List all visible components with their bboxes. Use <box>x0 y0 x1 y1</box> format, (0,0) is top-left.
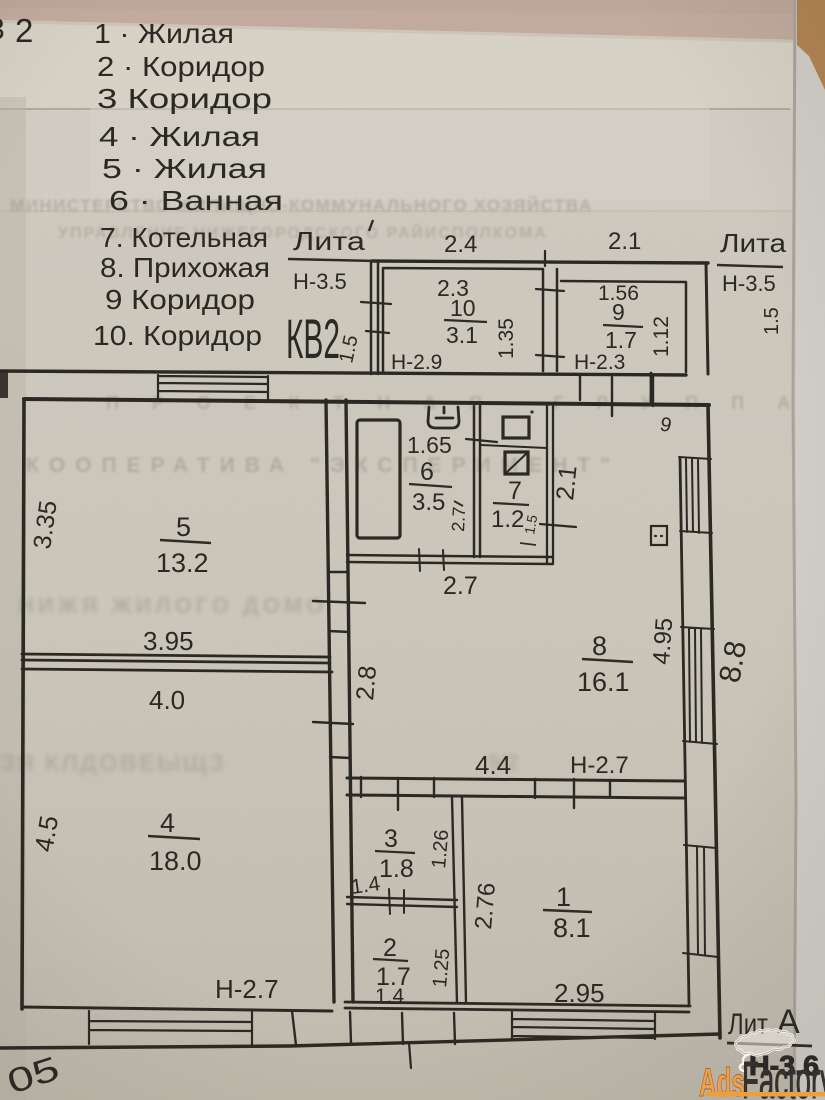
svg-text:2.7: 2.7 <box>443 572 478 600</box>
svg-text:18.0: 18.0 <box>149 846 202 876</box>
svg-text:2: 2 <box>383 934 397 962</box>
svg-text:10: 10 <box>450 295 476 321</box>
svg-text:Н-2.7: Н-2.7 <box>215 974 279 1004</box>
svg-text:2: 2 <box>15 12 33 49</box>
svg-text:4.5: 4.5 <box>28 813 64 854</box>
svg-text:3: 3 <box>0 13 5 46</box>
svg-text:1.5: 1.5 <box>521 513 540 535</box>
svg-text:КВ2: КВ2 <box>286 307 340 370</box>
svg-text:Лита: Лита <box>720 228 787 258</box>
svg-text:Н-2.7: Н-2.7 <box>570 752 629 779</box>
svg-text:7: 7 <box>508 477 522 505</box>
svg-text:1.12: 1.12 <box>650 316 673 357</box>
svg-text:Н-2.9: Н-2.9 <box>391 351 442 374</box>
svg-text:5 · Жилая: 5 · Жилая <box>102 153 267 184</box>
svg-text:10. Коридор: 10. Коридор <box>93 320 262 351</box>
svg-text:Лита: Лита <box>293 226 366 256</box>
svg-text:6 · Ванная: 6 · Ванная <box>109 185 283 216</box>
svg-text:6: 6 <box>420 458 434 486</box>
svg-text:4.4: 4.4 <box>475 750 511 780</box>
svg-text:1.4: 1.4 <box>375 985 405 1008</box>
svg-text:НИЖЯ ЖИЛОГО ДОМО: НИЖЯ ЖИЛОГО ДОМО <box>18 593 327 618</box>
svg-text:8. Прихожая: 8. Прихожая <box>100 252 270 283</box>
svg-text:1 · Жилая: 1 · Жилая <box>94 18 234 49</box>
svg-text:4 · Жилая: 4 · Жилая <box>99 121 260 152</box>
svg-text:КООПЕРАТИВА "ЭКСПЕРИМЕНТ": КООПЕРАТИВА "ЭКСПЕРИМЕНТ" <box>26 454 620 477</box>
svg-text:2.1: 2.1 <box>551 464 582 502</box>
svg-text:1.5: 1.5 <box>761 307 783 335</box>
svg-text:1.4: 1.4 <box>349 872 381 899</box>
svg-text:1.35: 1.35 <box>495 318 518 359</box>
svg-text:4: 4 <box>160 808 175 838</box>
svg-text:Н-3.5: Н-3.5 <box>722 271 776 296</box>
svg-text:9 Коридор: 9 Коридор <box>105 284 255 315</box>
svg-text:1.65: 1.65 <box>407 432 452 458</box>
svg-text:2.4: 2.4 <box>444 231 477 258</box>
svg-text:4.95: 4.95 <box>648 617 678 665</box>
svg-text:16.1: 16.1 <box>577 667 630 697</box>
svg-text:2.7: 2.7 <box>448 506 469 532</box>
svg-text:8: 8 <box>592 631 607 661</box>
svg-text:1.7: 1.7 <box>605 327 637 353</box>
svg-text:3.1: 3.1 <box>446 322 478 348</box>
svg-text:1: 1 <box>556 882 571 912</box>
svg-text:1.26: 1.26 <box>428 829 453 870</box>
svg-text:9: 9 <box>612 299 625 325</box>
svg-text:1.8: 1.8 <box>379 855 414 883</box>
svg-text:8.1: 8.1 <box>553 913 591 943</box>
svg-text:13.2: 13.2 <box>156 548 209 578</box>
svg-text:3 Коридор: 3 Коридор <box>97 83 272 114</box>
svg-text:5: 5 <box>176 512 191 542</box>
svg-text:7. Котельная: 7. Котельная <box>100 222 268 253</box>
svg-text:2.1: 2.1 <box>608 228 641 255</box>
svg-text:1.2: 1.2 <box>491 506 524 533</box>
svg-text:2.95: 2.95 <box>554 978 605 1008</box>
svg-text:4.0: 4.0 <box>149 685 185 715</box>
svg-text:ЗЯ КЛДОВЕЫЩЗ: ЗЯ КЛДОВЕЫЩЗ <box>0 750 226 777</box>
svg-text:Н-2.3: Н-2.3 <box>574 351 625 374</box>
svg-text:3.5: 3.5 <box>412 489 445 516</box>
svg-text:2 · Коридор: 2 · Коридор <box>97 51 265 82</box>
svg-text:3: 3 <box>384 825 398 853</box>
svg-text:2.76: 2.76 <box>470 882 501 931</box>
svg-text:2.8: 2.8 <box>351 664 382 701</box>
svg-text:1.25: 1.25 <box>429 948 454 989</box>
svg-text:Н-3.5: Н-3.5 <box>293 269 347 294</box>
svg-text:3.95: 3.95 <box>143 626 194 656</box>
svg-text:МИНИСТЕРСТВО ЖИЛИЩНО-КОММУНАЛЬ: МИНИСТЕРСТВО ЖИЛИЩНО-КОММУНАЛЬНОГО ХОЗЯЙ… <box>10 196 593 215</box>
